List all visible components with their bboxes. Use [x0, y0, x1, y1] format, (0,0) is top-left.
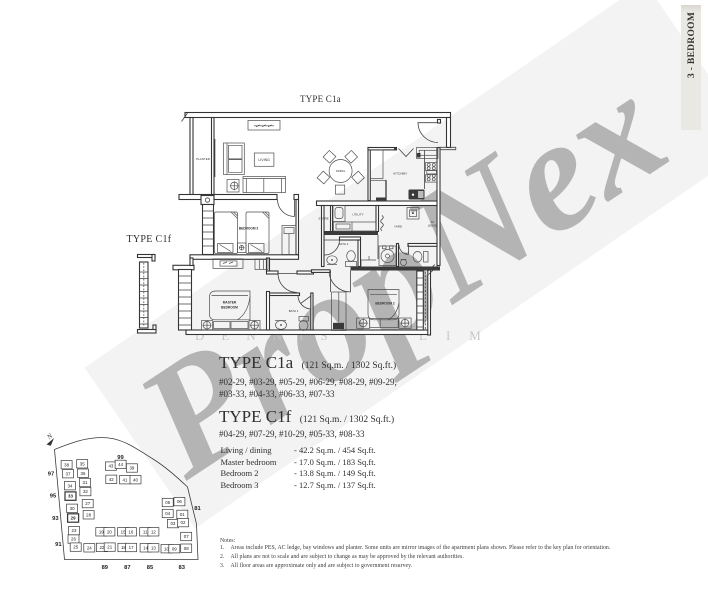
- svg-text:36: 36: [81, 471, 86, 476]
- svg-text:08: 08: [184, 546, 189, 551]
- svg-text:23: 23: [72, 528, 77, 533]
- svg-text:85: 85: [147, 565, 154, 571]
- svg-text:07: 07: [184, 534, 189, 539]
- svg-text:87: 87: [124, 565, 130, 571]
- svg-text:27: 27: [85, 501, 90, 506]
- svg-text:39: 39: [129, 466, 134, 471]
- svg-text:97: 97: [48, 472, 54, 478]
- svg-text:06: 06: [177, 499, 182, 504]
- svg-text:WC: WC: [405, 252, 410, 256]
- svg-text:29: 29: [71, 516, 76, 521]
- svg-text:PLANTER: PLANTER: [196, 157, 211, 161]
- svg-text:44: 44: [118, 462, 123, 467]
- svg-text:31: 31: [83, 480, 88, 485]
- svg-text:91: 91: [55, 542, 62, 548]
- svg-text:33: 33: [68, 494, 73, 499]
- svg-text:LEDGE: LEDGE: [428, 224, 438, 228]
- svg-text:43: 43: [108, 464, 113, 469]
- svg-text:BEDROOM 2: BEDROOM 2: [375, 302, 395, 306]
- svg-text:42: 42: [109, 477, 114, 482]
- svg-text:LIVING: LIVING: [258, 158, 270, 162]
- svg-text:30: 30: [70, 506, 75, 511]
- svg-text:89: 89: [102, 565, 109, 571]
- svg-text:DINING: DINING: [336, 169, 345, 173]
- svg-text:BEDROOM 3: BEDROOM 3: [239, 227, 259, 231]
- svg-text:37: 37: [66, 471, 71, 476]
- svg-text:05: 05: [165, 500, 170, 505]
- svg-text:13: 13: [151, 545, 156, 550]
- svg-text:28: 28: [86, 512, 91, 517]
- svg-text:40: 40: [133, 477, 138, 482]
- svg-text:MASTER: MASTER: [223, 301, 237, 305]
- svg-text:16: 16: [128, 529, 133, 534]
- svg-text:83: 83: [178, 565, 185, 571]
- svg-text:81: 81: [194, 506, 201, 512]
- svg-text:41: 41: [123, 477, 128, 482]
- svg-text:04: 04: [165, 511, 170, 516]
- svg-text:STORE: STORE: [318, 217, 328, 221]
- svg-text:38: 38: [64, 462, 69, 467]
- svg-text:BEDROOM: BEDROOM: [221, 306, 238, 310]
- svg-text:09: 09: [172, 546, 177, 551]
- svg-text:35: 35: [80, 461, 85, 466]
- svg-text:25: 25: [73, 545, 78, 550]
- svg-text:YARD: YARD: [394, 225, 403, 229]
- svg-text:02: 02: [181, 520, 186, 525]
- svg-text:19: 19: [99, 529, 104, 534]
- svg-text:95: 95: [50, 494, 57, 500]
- svg-text:UTILITY: UTILITY: [352, 213, 363, 217]
- svg-text:BATH 1: BATH 1: [289, 309, 299, 313]
- svg-text:24: 24: [87, 545, 92, 550]
- svg-text:34: 34: [67, 483, 72, 488]
- svg-text:32: 32: [83, 489, 88, 494]
- svg-text:21: 21: [107, 545, 112, 550]
- svg-text:17: 17: [129, 545, 134, 550]
- svg-text:11: 11: [143, 529, 148, 534]
- svg-text:03: 03: [170, 521, 175, 526]
- svg-text:BATH 2: BATH 2: [339, 242, 349, 246]
- svg-text:KITCHEN: KITCHEN: [393, 172, 407, 176]
- svg-text:26: 26: [71, 537, 76, 542]
- svg-text:01: 01: [180, 512, 185, 517]
- svg-text:12: 12: [151, 529, 156, 534]
- svg-text:20: 20: [107, 529, 112, 534]
- svg-text:93: 93: [52, 516, 59, 522]
